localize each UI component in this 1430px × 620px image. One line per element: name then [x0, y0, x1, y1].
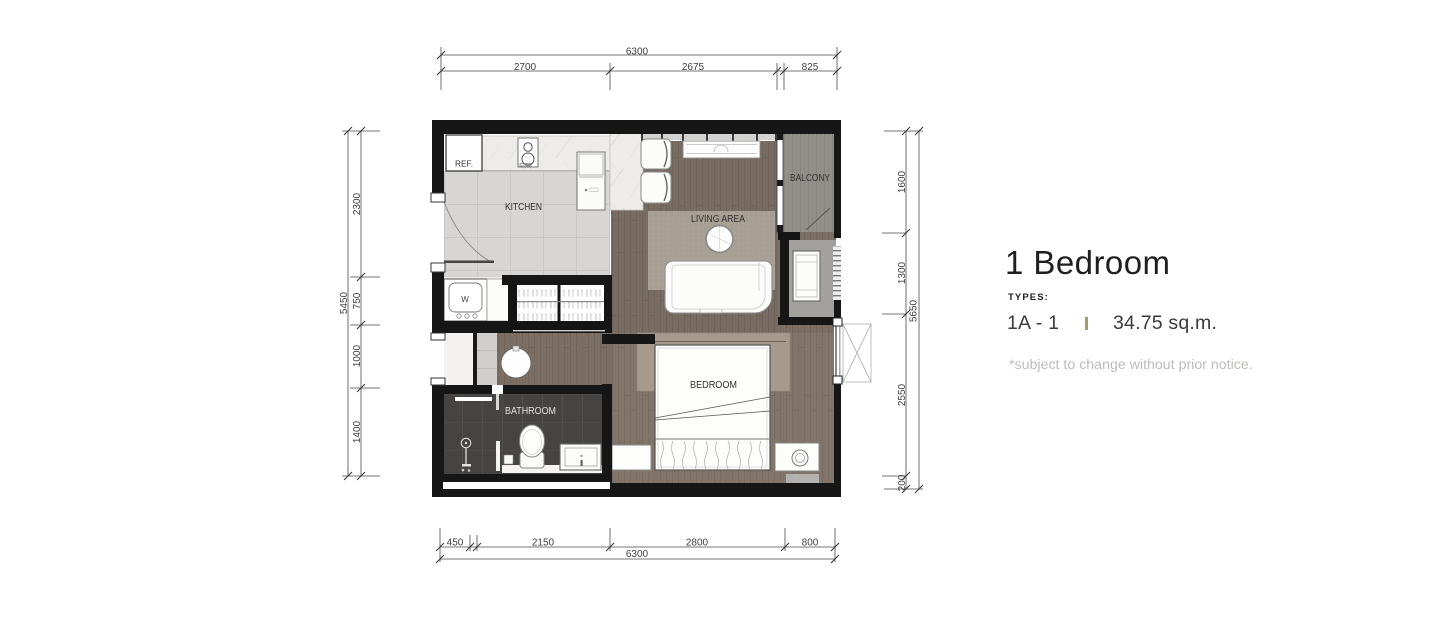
svg-text:BALCONY: BALCONY — [790, 173, 830, 184]
svg-text:800: 800 — [802, 538, 819, 549]
svg-text:1600: 1600 — [897, 170, 908, 193]
svg-text:BATHROOM: BATHROOM — [505, 406, 556, 417]
svg-text:LIVING AREA: LIVING AREA — [691, 214, 745, 225]
svg-text:BEDROOM: BEDROOM — [690, 380, 737, 391]
svg-text:450: 450 — [447, 538, 464, 549]
svg-text:2300: 2300 — [352, 192, 363, 215]
svg-text:1000: 1000 — [352, 344, 363, 367]
svg-text:750: 750 — [352, 292, 363, 309]
svg-text:2150: 2150 — [532, 538, 555, 549]
svg-text:5450: 5450 — [339, 291, 350, 314]
svg-text:2700: 2700 — [514, 62, 537, 73]
svg-text:825: 825 — [802, 62, 819, 73]
svg-text:KITCHEN: KITCHEN — [505, 202, 542, 213]
svg-text:2800: 2800 — [686, 538, 709, 549]
svg-text:1400: 1400 — [352, 420, 363, 443]
svg-text:1300: 1300 — [897, 261, 908, 284]
svg-text:200: 200 — [897, 474, 908, 491]
svg-text:5650: 5650 — [909, 299, 920, 322]
svg-text:REF.: REF. — [455, 159, 473, 169]
svg-text:2550: 2550 — [897, 383, 908, 406]
svg-text:6300: 6300 — [626, 47, 649, 58]
svg-text:W: W — [461, 295, 469, 304]
svg-text:2675: 2675 — [682, 62, 705, 73]
svg-text:6300: 6300 — [626, 549, 649, 560]
